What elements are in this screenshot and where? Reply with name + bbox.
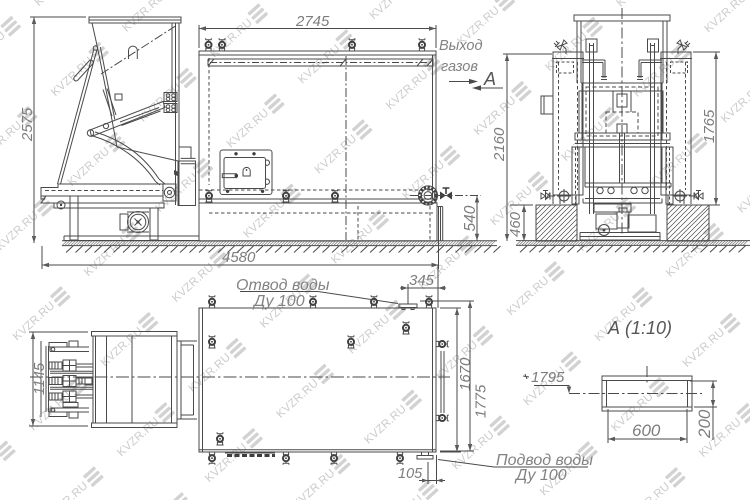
svg-text:1795: 1795 — [531, 369, 565, 386]
svg-text:1145: 1145 — [31, 362, 48, 395]
svg-text:KVZR.RU: KVZR.RU — [362, 403, 409, 447]
svg-text:Ду 100: Ду 100 — [514, 467, 567, 484]
svg-text:KVZR.RU: KVZR.RU — [66, 145, 113, 189]
svg-text:105: 105 — [398, 466, 423, 482]
svg-text:KVZR.RU: KVZR.RU — [170, 261, 217, 305]
svg-text:KVZR.RU: KVZR.RU — [208, 17, 255, 61]
svg-text:Выход: Выход — [439, 38, 483, 54]
svg-text:KVZR.RU: KVZR.RU — [736, 172, 750, 216]
svg-text:KVZR.RU: KVZR.RU — [626, 481, 673, 500]
svg-text:600: 600 — [632, 421, 661, 440]
svg-text:А (1:10): А (1:10) — [607, 318, 672, 338]
svg-text:KVZR.RU: KVZR.RU — [681, 326, 728, 370]
svg-text:2745: 2745 — [295, 13, 330, 30]
svg-text:KVZR.RU: KVZR.RU — [274, 377, 321, 421]
svg-text:газов: газов — [441, 59, 478, 75]
svg-text:KVZR.RU: KVZR.RU — [313, 133, 360, 177]
svg-text:540: 540 — [462, 205, 479, 231]
svg-text:KVZR.RU: KVZR.RU — [291, 467, 338, 500]
svg-text:2575: 2575 — [19, 107, 36, 142]
svg-text:KVZR.RU: KVZR.RU — [225, 107, 272, 151]
svg-text:KVZR.RU: KVZR.RU — [368, 0, 415, 22]
svg-text:KVZR.RU: KVZR.RU — [33, 0, 80, 9]
svg-text:KVZR.RU: KVZR.RU — [115, 416, 162, 460]
svg-text:А: А — [483, 69, 496, 89]
svg-text:KVZR.RU: KVZR.RU — [329, 223, 376, 267]
svg-text:460: 460 — [507, 211, 524, 237]
svg-text:4580: 4580 — [222, 249, 256, 266]
svg-text:345: 345 — [409, 272, 435, 289]
svg-text:1765: 1765 — [701, 109, 718, 143]
svg-text:KVZR.RU: KVZR.RU — [0, 209, 41, 253]
svg-text:KVZR.RU: KVZR.RU — [346, 313, 393, 357]
svg-text:200: 200 — [695, 409, 714, 439]
svg-text:KVZR.RU: KVZR.RU — [379, 493, 426, 500]
svg-text:KVZR.RU: KVZR.RU — [719, 82, 750, 126]
svg-text:1670: 1670 — [457, 357, 474, 391]
svg-text:Ду 100: Ду 100 — [252, 293, 305, 310]
svg-text:KVZR.RU: KVZR.RU — [703, 0, 750, 35]
svg-text:KVZR.RU: KVZR.RU — [0, 29, 8, 73]
svg-text:KVZR.RU: KVZR.RU — [384, 68, 431, 112]
svg-text:2160: 2160 — [491, 127, 508, 162]
svg-text:KVZR.RU: KVZR.RU — [44, 480, 91, 500]
svg-text:KVZR.RU: KVZR.RU — [296, 43, 343, 87]
svg-text:KVZR.RU: KVZR.RU — [0, 454, 3, 498]
svg-text:KVZR.RU: KVZR.RU — [505, 274, 552, 318]
svg-text:1775: 1775 — [473, 384, 490, 418]
